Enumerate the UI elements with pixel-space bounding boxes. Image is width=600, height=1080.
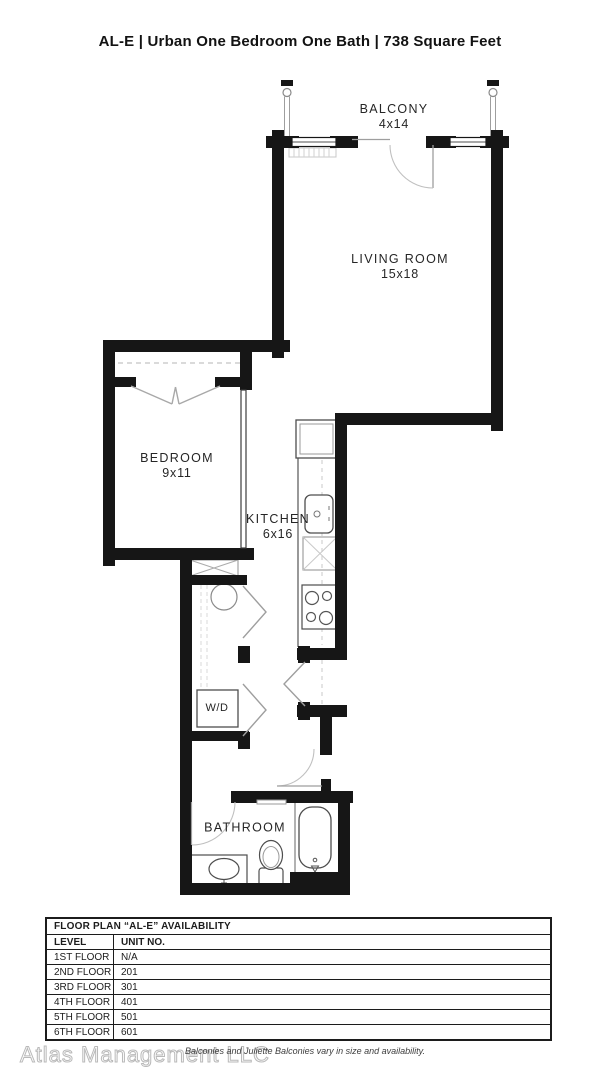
availability-table: FLOOR PLAN “AL-E” AVAILABILITY LEVEL UNI…: [45, 917, 552, 1041]
living-room-window-right: [450, 138, 486, 147]
table-row: 3RD FLOOR 301: [47, 980, 550, 995]
refrigerator: [296, 420, 337, 458]
level-cell: 6TH FLOOR: [47, 1025, 114, 1039]
stove: [302, 585, 336, 629]
unit-cell: 601: [114, 1025, 550, 1039]
vanity-sink: [189, 855, 247, 886]
room-dims: 15x18: [351, 267, 449, 282]
bedroom-french-doors: [131, 386, 220, 404]
entry-door: [277, 749, 322, 786]
column-header-unit: UNIT NO.: [114, 935, 550, 949]
table-row: 6TH FLOOR 601: [47, 1025, 550, 1039]
windows: [292, 138, 486, 147]
unit-cell: 201: [114, 965, 550, 979]
room-dims: 4x14: [360, 117, 429, 132]
bathtub: [295, 802, 331, 872]
mechanical-chase: [190, 560, 238, 576]
bedroom-label: BEDROOM 9x11: [140, 451, 214, 481]
floor-plan-page: AL-E | Urban One Bedroom One Bath | 738 …: [0, 0, 600, 1080]
living-room-label: LIVING ROOM 15x18: [351, 252, 449, 282]
unit-cell: 301: [114, 980, 550, 994]
level-cell: 1ST FLOOR: [47, 950, 114, 964]
room-dims: 9x11: [140, 466, 214, 481]
bath-shelf: [257, 800, 286, 804]
unit-cell: 401: [114, 995, 550, 1009]
table-title: FLOOR PLAN “AL-E” AVAILABILITY: [47, 919, 550, 935]
room-name: BALCONY: [360, 102, 429, 117]
table-row: 1ST FLOOR N/A: [47, 950, 550, 965]
kitchen-label: KITCHEN 6x16: [246, 512, 310, 542]
room-name: BATHROOM: [204, 821, 286, 836]
room-dims: 6x16: [246, 527, 310, 542]
bathroom-label: BATHROOM: [204, 821, 286, 836]
level-cell: 2ND FLOOR: [47, 965, 114, 979]
wall-blocks: [238, 646, 350, 895]
washer-dryer-label: W/D: [206, 702, 229, 714]
water-heater: [211, 584, 237, 610]
level-cell: 4TH FLOOR: [47, 995, 114, 1009]
column-header-level: LEVEL: [47, 935, 114, 949]
table-header-row: LEVEL UNIT NO.: [47, 935, 550, 950]
room-name: BEDROOM: [140, 451, 214, 466]
level-cell: 3RD FLOOR: [47, 980, 114, 994]
room-name: KITCHEN: [246, 512, 310, 527]
tub-platform: [290, 872, 350, 895]
level-cell: 5TH FLOOR: [47, 1010, 114, 1024]
table-row: 4TH FLOOR 401: [47, 995, 550, 1010]
unit-cell: 501: [114, 1010, 550, 1024]
balcony-door: [390, 145, 433, 188]
unit-cell: N/A: [114, 950, 550, 964]
disclaimer-note: Balconies and Juliette Balconies vary in…: [185, 1046, 425, 1056]
room-name: LIVING ROOM: [351, 252, 449, 267]
closet-bifold-doors: [243, 586, 305, 736]
table-row: 2ND FLOOR 201: [47, 965, 550, 980]
table-row: 5TH FLOOR 501: [47, 1010, 550, 1025]
toilet: [259, 841, 283, 887]
balcony-label: BALCONY 4x14: [360, 102, 429, 132]
living-room-window-left: [292, 138, 336, 147]
